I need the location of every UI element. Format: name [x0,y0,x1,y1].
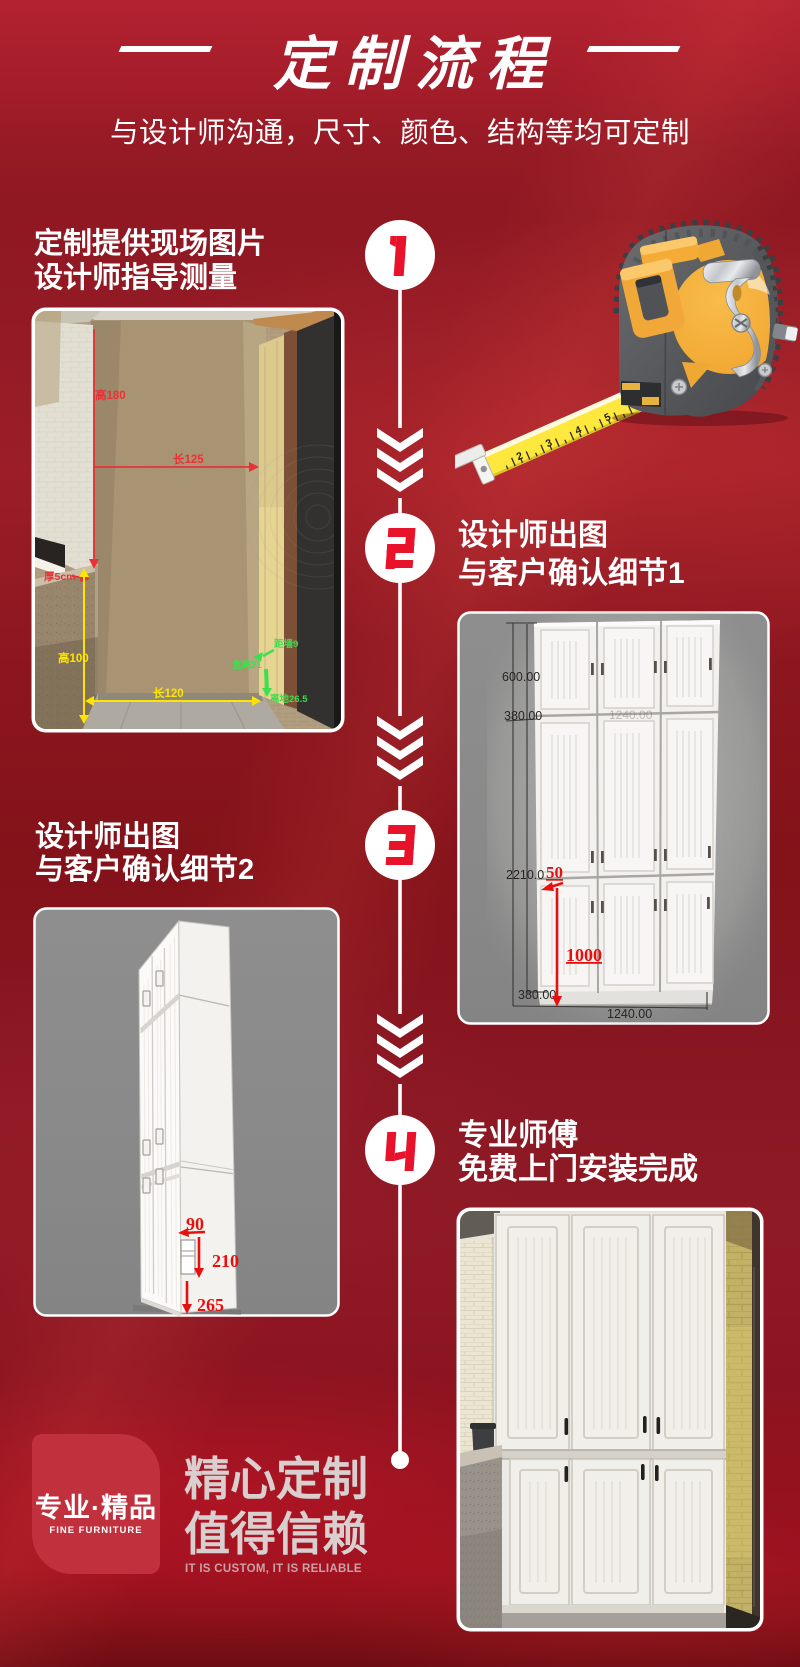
svg-text:长120: 长120 [153,686,184,700]
svg-text:厚5cm: 厚5cm [44,571,76,583]
svg-text:长125: 长125 [173,452,204,466]
svg-text:1240.00: 1240.00 [607,1007,652,1021]
svg-text:2210.0: 2210.0 [506,868,544,882]
svg-text:1000: 1000 [566,945,602,965]
svg-text:高100: 高100 [58,651,89,665]
svg-text:210: 210 [212,1251,239,1271]
svg-text:离地26.5: 离地26.5 [270,693,308,705]
svg-text:高180: 高180 [95,388,126,402]
svg-text:380.00: 380.00 [518,988,556,1002]
svg-text:距墙9: 距墙9 [274,638,298,650]
svg-text:盒高21: 盒高21 [231,659,262,671]
svg-text:380.00: 380.00 [504,709,542,723]
svg-text:600.00: 600.00 [502,670,540,684]
svg-text:265: 265 [197,1295,224,1315]
svg-text:50: 50 [546,863,563,882]
svg-text:1240.00: 1240.00 [609,708,653,722]
